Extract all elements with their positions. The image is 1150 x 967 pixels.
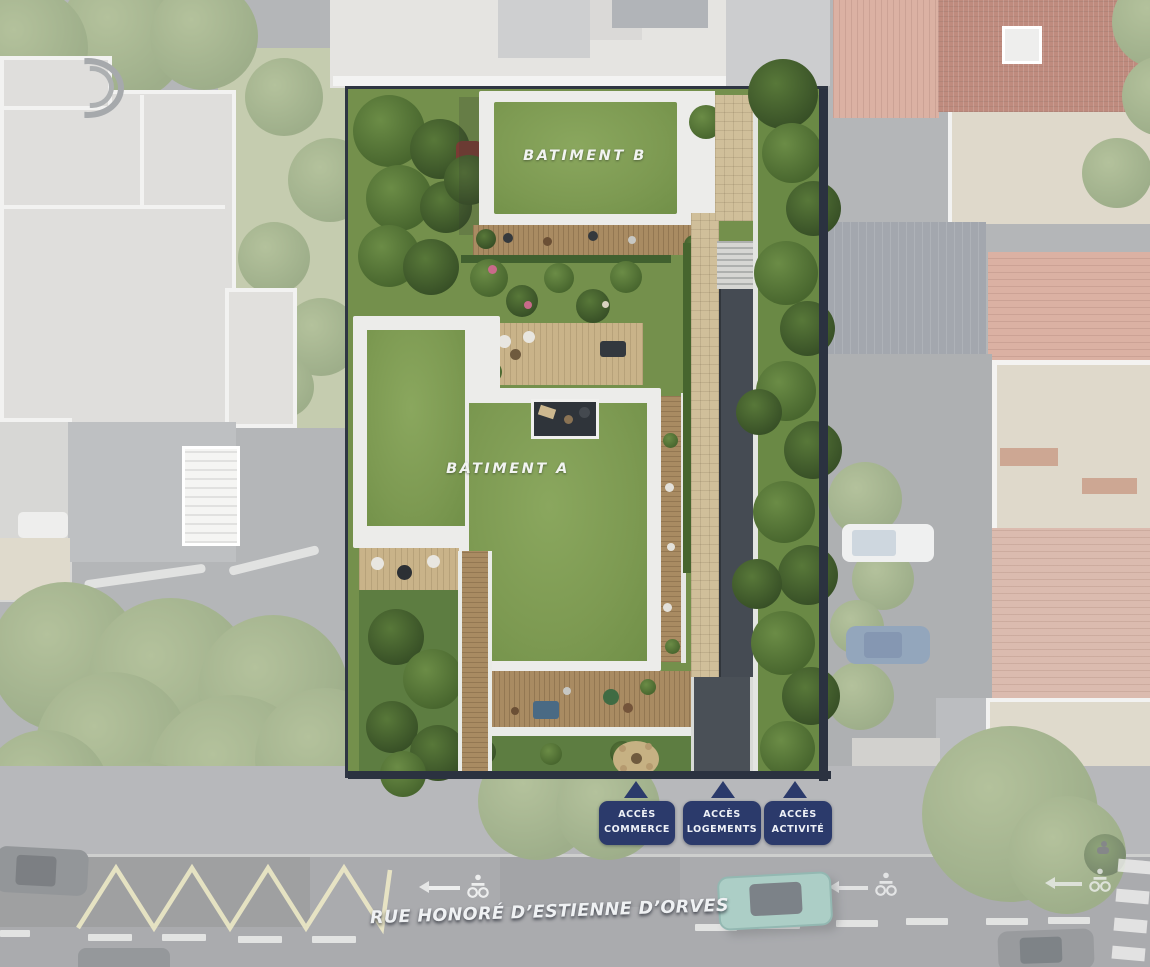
building-a-green-roof [469, 403, 647, 661]
site-boundary [819, 89, 828, 781]
cyclist-marking [466, 872, 490, 900]
tree [403, 649, 463, 709]
shrub [610, 261, 642, 293]
tree [403, 239, 459, 295]
access-logements-line1: ACCÈS [703, 808, 740, 823]
flower-bed [488, 265, 497, 274]
shrub [506, 285, 538, 317]
parked-car [78, 948, 170, 967]
building-b-label: BATIMENT B [479, 148, 691, 164]
crosswalk-stripe [1117, 859, 1150, 875]
tree [748, 59, 818, 129]
balcony-chair [663, 603, 672, 612]
lane-dash [836, 920, 878, 927]
lane-dash [1048, 917, 1090, 924]
entrance-canopy [691, 677, 753, 777]
tree [751, 611, 815, 675]
balcony-chair [667, 543, 675, 551]
tree [754, 241, 818, 305]
roof-terrace [612, 0, 708, 28]
hedge [683, 243, 691, 573]
shrub [540, 743, 562, 765]
lane-dash [906, 918, 948, 925]
planter [476, 229, 496, 249]
left-arrow-marking [838, 886, 868, 890]
skylight [1002, 26, 1042, 64]
tree [753, 481, 815, 543]
parked-car [846, 626, 930, 664]
shrub [470, 259, 508, 297]
crosswalk-stripe [1115, 889, 1149, 905]
patio-chair [619, 745, 626, 752]
patio-chair [646, 763, 653, 770]
tree [778, 545, 838, 605]
terrace-chair [427, 555, 440, 568]
building-a-green-roof [367, 330, 465, 526]
pedestrian-walkway [715, 95, 753, 221]
path-curb [84, 564, 206, 590]
neighbor-building-roof [0, 90, 236, 428]
tree [1082, 138, 1150, 208]
terrace-furniture [543, 237, 552, 246]
terrace-table [603, 689, 619, 705]
lane-dash [986, 918, 1028, 925]
tree [760, 721, 815, 776]
aerial-site-plan-render: BATIMENT B BATIMENT A [0, 0, 1150, 967]
roof-planter [1082, 478, 1137, 494]
fire-pit [397, 565, 412, 580]
terrace-table [510, 349, 521, 360]
terrace-furniture [623, 703, 633, 713]
access-marker-triangle-icon [783, 781, 807, 798]
car-windshield [749, 882, 803, 917]
lane-dash [162, 934, 206, 941]
terrace-chair [371, 557, 384, 570]
neighbor-building-wing [225, 288, 297, 428]
tree [245, 58, 323, 136]
car-roof [864, 632, 902, 658]
outdoor-table [18, 512, 68, 538]
roof-planter [1000, 448, 1058, 466]
lane-dash [88, 934, 132, 941]
access-activite-line1: ACCÈS [779, 808, 816, 823]
terracotta-roof [833, 0, 939, 118]
tree [238, 222, 310, 294]
tree [736, 389, 782, 435]
terrace-furniture [564, 415, 573, 424]
terrace-furniture [503, 233, 513, 243]
access-logements-line2: LOGEMENTS [687, 823, 757, 838]
cyclist-marking [1088, 866, 1112, 894]
tree [762, 123, 822, 183]
pergola [182, 446, 240, 546]
terrace-chair [523, 331, 535, 343]
planter [640, 679, 656, 695]
patio-table [631, 753, 642, 764]
tree [732, 559, 782, 609]
no-parking-zigzag-marking [68, 858, 408, 936]
terrace-furniture [563, 687, 571, 695]
terrace-furniture [579, 407, 590, 418]
terrace-lounger [533, 701, 559, 719]
path-curb [228, 545, 319, 576]
cyclist-marking [874, 870, 898, 898]
lane-dash [238, 936, 282, 943]
car-roof [1020, 936, 1063, 963]
access-commerce-line2: COMMERCE [604, 823, 670, 838]
terrace-furniture [588, 231, 598, 241]
roof-parapet-line [140, 95, 144, 207]
terrace-grill [600, 341, 626, 357]
access-marker-triangle-icon [624, 781, 648, 798]
access-logements-badge: ACCÈS LOGEMENTS [683, 801, 761, 845]
driving-car [997, 928, 1094, 967]
left-arrow-marking [428, 886, 460, 890]
shrub [544, 263, 574, 293]
lane-dash [312, 936, 356, 943]
parked-van [842, 524, 934, 562]
access-ramp [719, 289, 755, 679]
access-commerce-badge: ACCÈS COMMERCE [599, 801, 675, 845]
roof-terrace [498, 0, 590, 58]
lane-dash [0, 930, 30, 937]
left-arrow-marking [1054, 882, 1082, 886]
tree [782, 667, 840, 725]
driving-car-teal [717, 871, 834, 931]
van-windows [852, 530, 896, 556]
terrace-furniture [511, 707, 519, 715]
dark-roof [826, 222, 986, 354]
planter [663, 433, 678, 448]
pedestrian [1097, 847, 1109, 854]
tree [784, 421, 842, 479]
building-shadow [459, 97, 481, 235]
crosswalk-stripe [1113, 918, 1147, 934]
access-marker-triangle-icon [711, 781, 735, 798]
balcony-chair [665, 483, 674, 492]
crosswalk-stripe [1111, 946, 1145, 962]
building-a-label: BATIMENT A [418, 461, 598, 477]
flower-bed [602, 301, 609, 308]
terracotta-roof [992, 528, 1150, 706]
flower-bed [524, 301, 532, 309]
parked-car [0, 846, 89, 897]
access-activite-badge: ACCÈS ACTIVITÉ [764, 801, 832, 845]
lower-deck [462, 551, 488, 773]
project-site: BATIMENT B BATIMENT A [345, 86, 828, 778]
terracotta-roof [988, 252, 1150, 364]
access-activite-line2: ACTIVITÉ [772, 823, 825, 838]
tree [786, 181, 841, 236]
patio-chair [645, 743, 652, 750]
car-roof [15, 855, 57, 887]
planter [665, 639, 680, 654]
access-commerce-line1: ACCÈS [618, 808, 655, 823]
stairs [717, 241, 753, 289]
roof-parapet-line [0, 205, 225, 209]
terrace-furniture [628, 236, 636, 244]
site-boundary [348, 771, 831, 779]
deck-parapet [488, 551, 492, 773]
